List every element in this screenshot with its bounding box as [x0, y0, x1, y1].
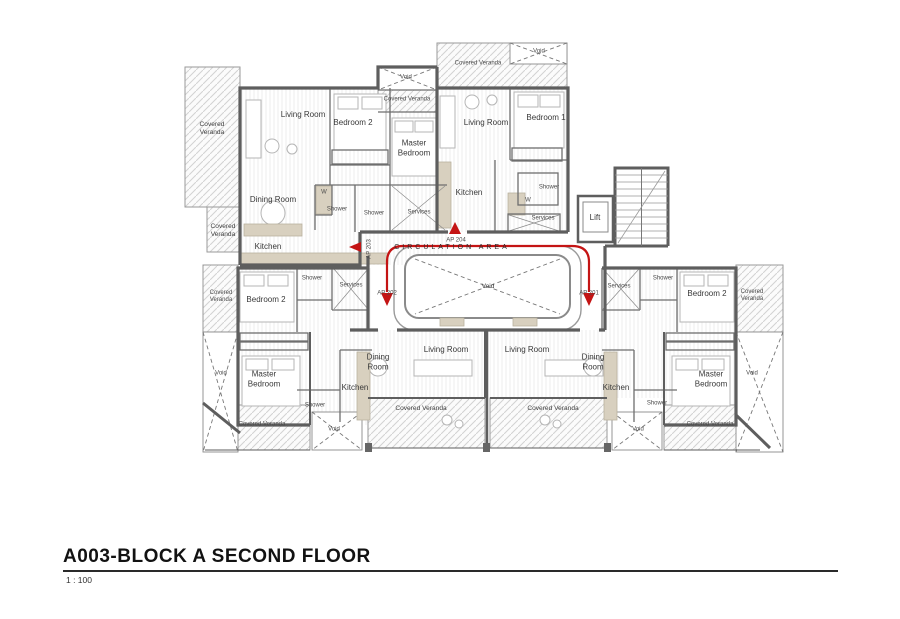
- central-void: [394, 246, 581, 330]
- arrow-down-ap201: [583, 293, 595, 306]
- lift-car: [583, 202, 608, 232]
- floor-plan-sheet: Covered VerandaCovered VerandaLiving Roo…: [0, 0, 900, 619]
- drawing-scale: 1 : 100: [66, 575, 92, 585]
- arrow-down-ap202: [381, 293, 393, 306]
- drawing-title: A003-BLOCK A SECOND FLOOR: [63, 546, 371, 568]
- floor-plan-drawing: [0, 0, 900, 619]
- stairs: [615, 168, 668, 246]
- title-underline: [63, 570, 838, 572]
